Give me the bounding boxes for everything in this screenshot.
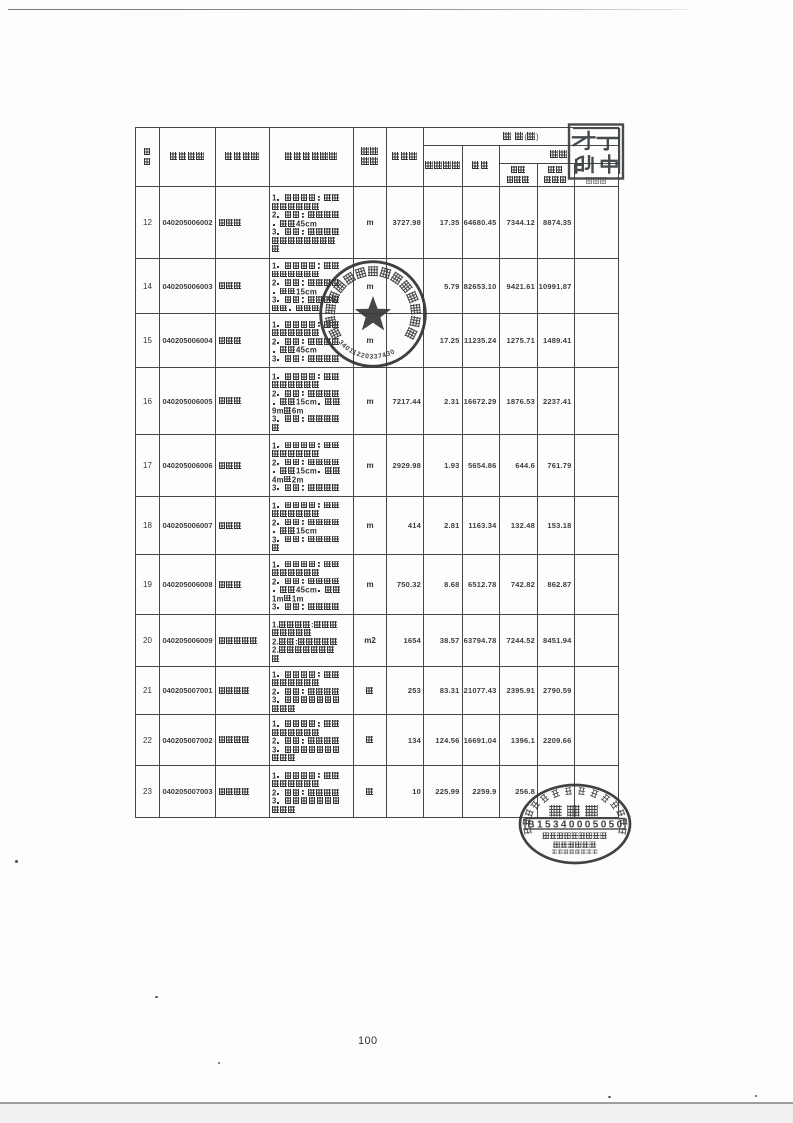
svg-text:B15340005050: B15340005050 <box>527 819 624 830</box>
